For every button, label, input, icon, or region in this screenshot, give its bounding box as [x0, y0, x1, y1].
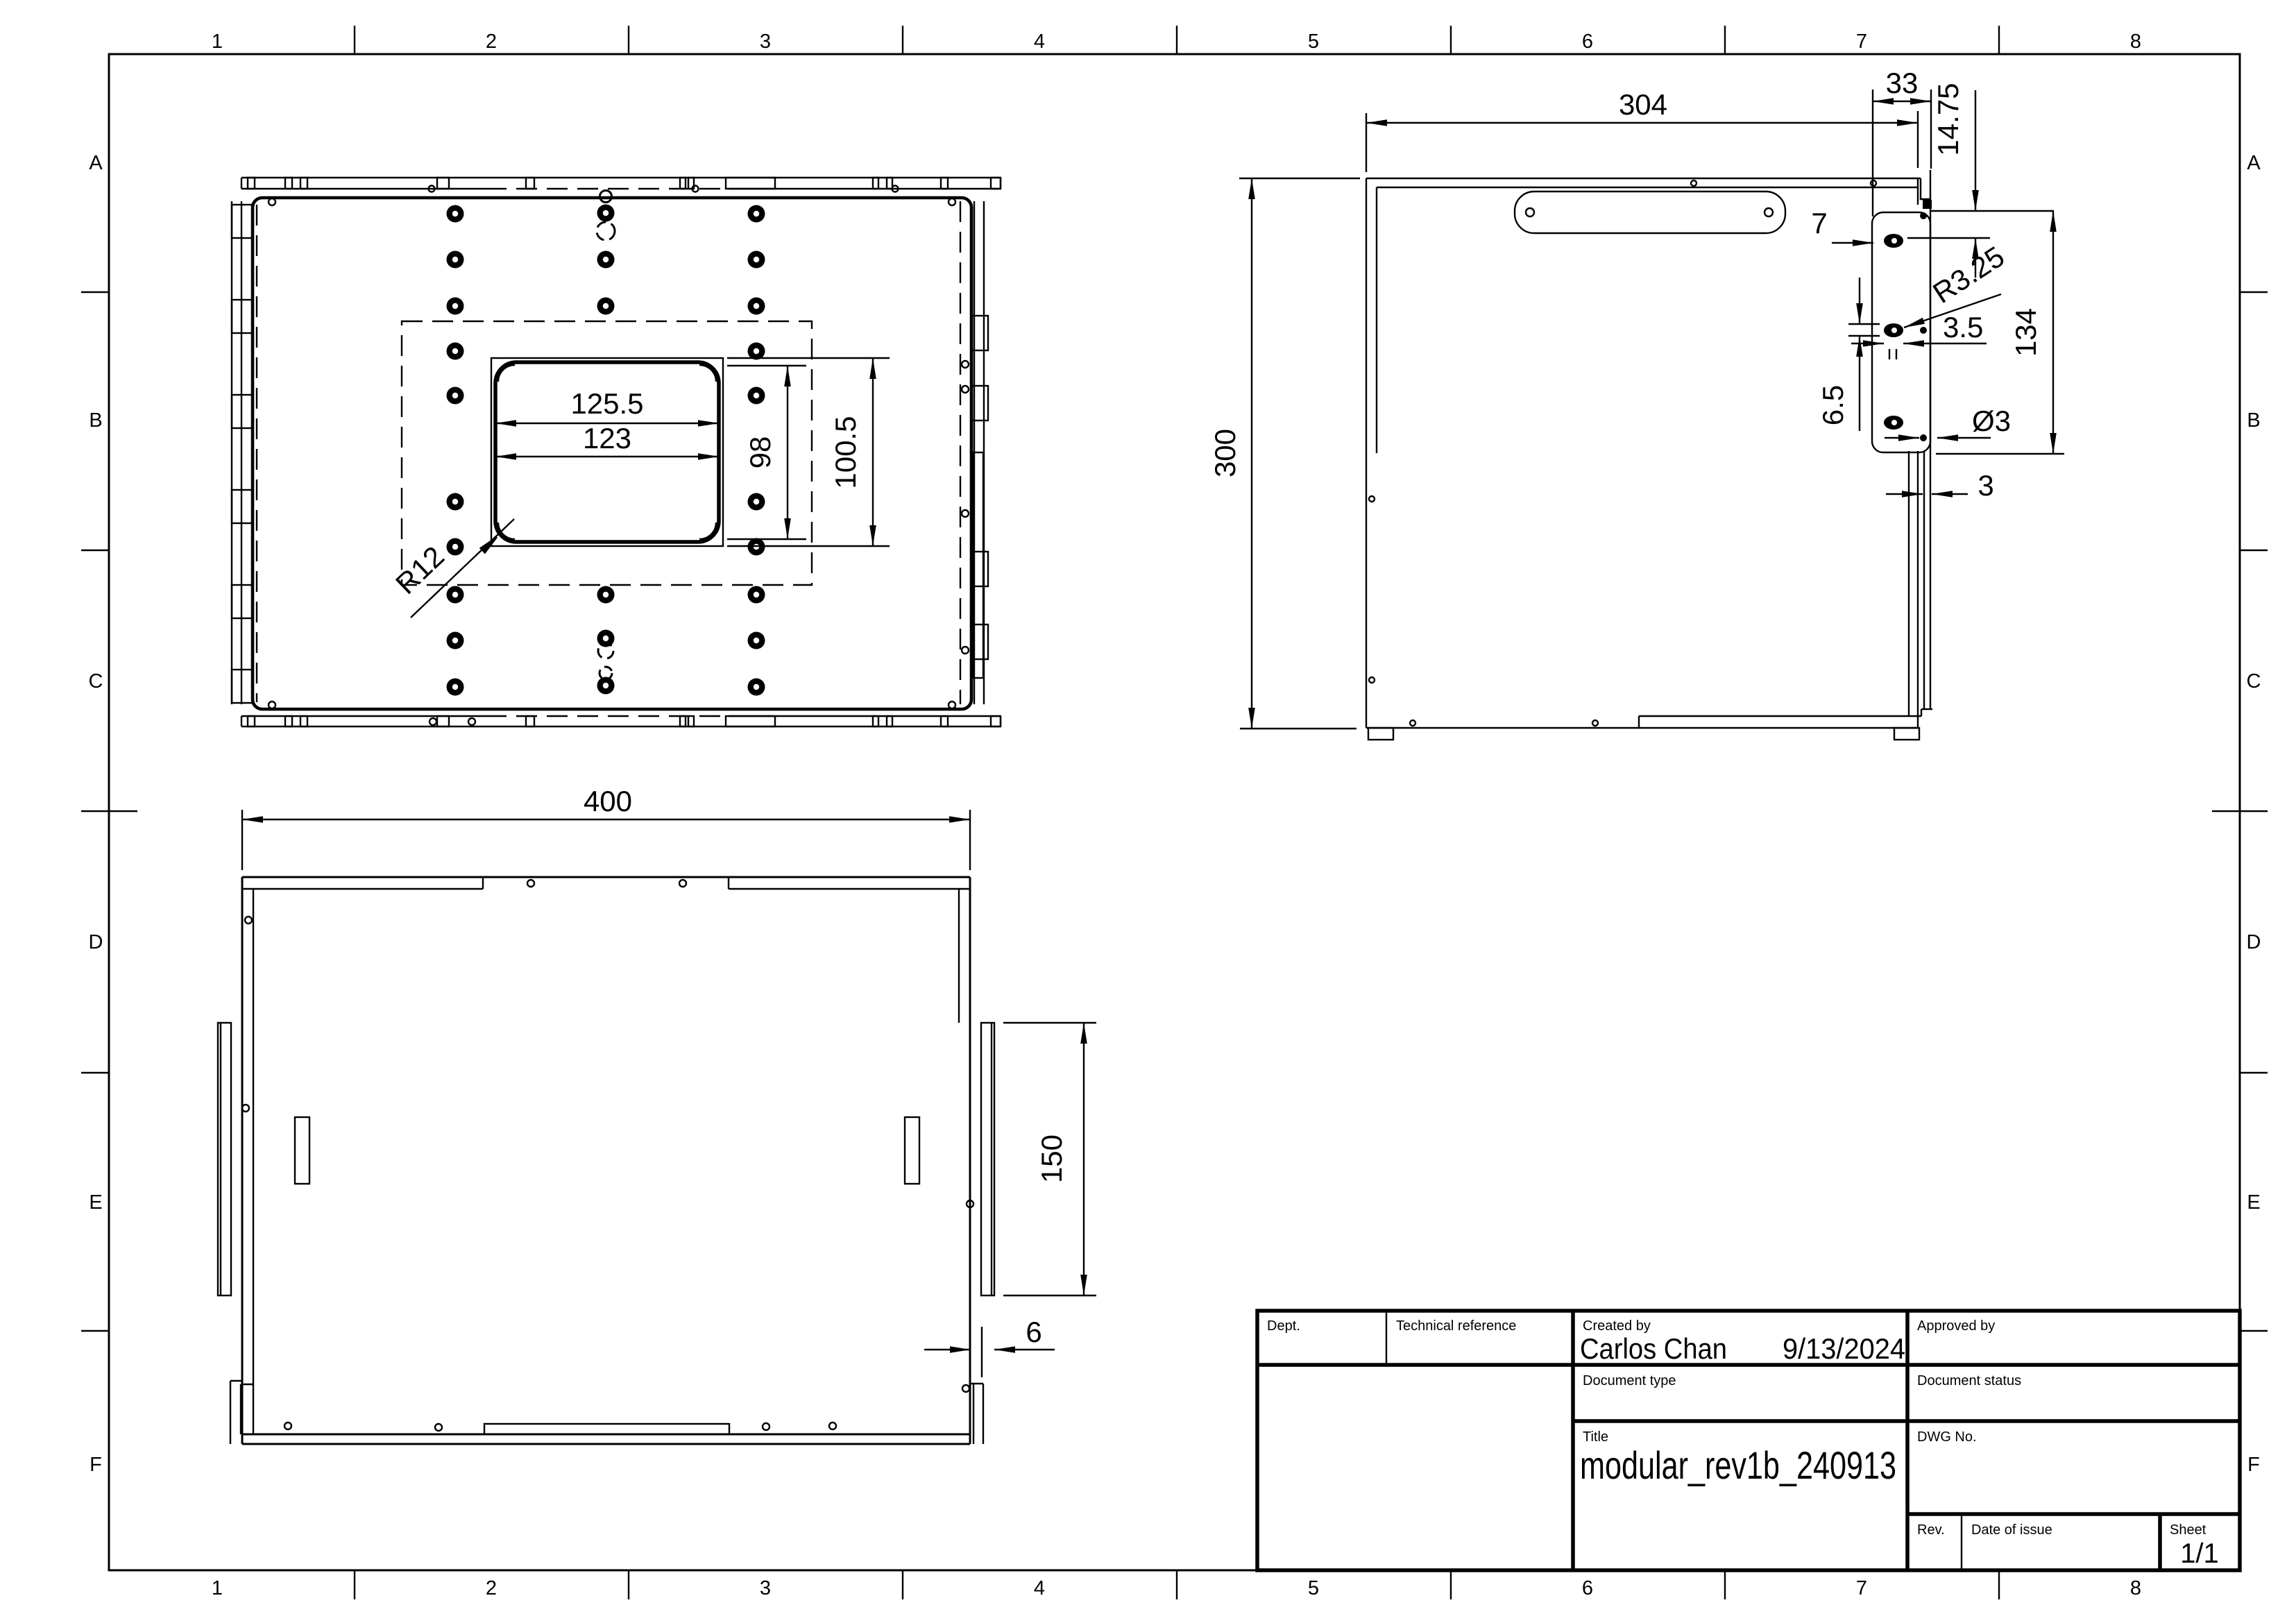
svg-text:3.5: 3.5 — [1943, 311, 1983, 343]
svg-text:100.5: 100.5 — [829, 416, 862, 488]
svg-text:D: D — [89, 931, 103, 953]
svg-text:Document type: Document type — [1583, 1373, 1676, 1388]
svg-text:Title: Title — [1583, 1429, 1608, 1445]
svg-text:Rev.: Rev. — [1917, 1522, 1945, 1538]
svg-text:DWG No.: DWG No. — [1917, 1429, 1977, 1445]
svg-text:Created by: Created by — [1583, 1318, 1651, 1334]
svg-text:3: 3 — [1978, 469, 1993, 502]
svg-text:C: C — [2247, 670, 2261, 692]
svg-text:Sheet: Sheet — [2170, 1522, 2206, 1538]
svg-text:5: 5 — [1308, 31, 1319, 53]
svg-text:6: 6 — [1026, 1316, 1041, 1348]
svg-text:Approved by: Approved by — [1917, 1318, 1995, 1334]
svg-text:300: 300 — [1209, 429, 1241, 477]
svg-text:D: D — [2247, 931, 2261, 953]
svg-text:Technical reference: Technical reference — [1396, 1318, 1516, 1334]
svg-text:400: 400 — [584, 785, 632, 817]
svg-text:9/13/2024: 9/13/2024 — [1783, 1332, 1905, 1365]
svg-text:2: 2 — [486, 31, 497, 53]
svg-text:7: 7 — [1856, 31, 1867, 53]
svg-text:Dept.: Dept. — [1267, 1318, 1300, 1334]
svg-text:3: 3 — [760, 1577, 771, 1599]
svg-text:A: A — [2247, 152, 2261, 174]
svg-text:4: 4 — [1034, 1577, 1045, 1599]
svg-text:1: 1 — [212, 31, 223, 53]
svg-text:Ø3: Ø3 — [1972, 405, 2011, 437]
svg-text:4: 4 — [1034, 31, 1045, 53]
svg-text:B: B — [89, 409, 102, 432]
svg-text:6.5: 6.5 — [1817, 385, 1849, 425]
svg-text:150: 150 — [1035, 1135, 1068, 1183]
svg-text:E: E — [2247, 1191, 2260, 1214]
svg-text:3: 3 — [760, 31, 771, 53]
svg-text:7: 7 — [1856, 1577, 1867, 1599]
svg-text:14.75: 14.75 — [1932, 83, 1964, 155]
svg-text:A: A — [89, 152, 103, 174]
svg-text:E: E — [89, 1191, 102, 1214]
svg-text:7: 7 — [1811, 207, 1827, 239]
svg-text:6: 6 — [1582, 31, 1593, 53]
svg-text:8: 8 — [2130, 1577, 2141, 1599]
svg-text:Date of issue: Date of issue — [1971, 1522, 2052, 1538]
svg-text:Carlos Chan: Carlos Chan — [1580, 1332, 1727, 1365]
svg-text:98: 98 — [744, 436, 776, 469]
svg-text:134: 134 — [2009, 308, 2042, 357]
svg-text:1/1: 1/1 — [2180, 1538, 2219, 1569]
svg-text:modular_rev1b_240913: modular_rev1b_240913 — [1580, 1443, 1896, 1487]
svg-text:F: F — [2247, 1454, 2260, 1476]
svg-text:6: 6 — [1582, 1577, 1593, 1599]
svg-text:1: 1 — [212, 1577, 223, 1599]
svg-text:304: 304 — [1619, 88, 1667, 121]
svg-text:2: 2 — [486, 1577, 497, 1599]
svg-text:33: 33 — [1886, 67, 1919, 99]
svg-text:125.5: 125.5 — [570, 387, 643, 420]
svg-text:B: B — [2247, 409, 2260, 432]
svg-text:Document status: Document status — [1917, 1373, 2021, 1388]
svg-text:F: F — [90, 1454, 102, 1476]
svg-text:5: 5 — [1308, 1577, 1319, 1599]
svg-text:C: C — [89, 670, 103, 692]
svg-text:8: 8 — [2130, 31, 2141, 53]
svg-text:123: 123 — [583, 422, 631, 454]
